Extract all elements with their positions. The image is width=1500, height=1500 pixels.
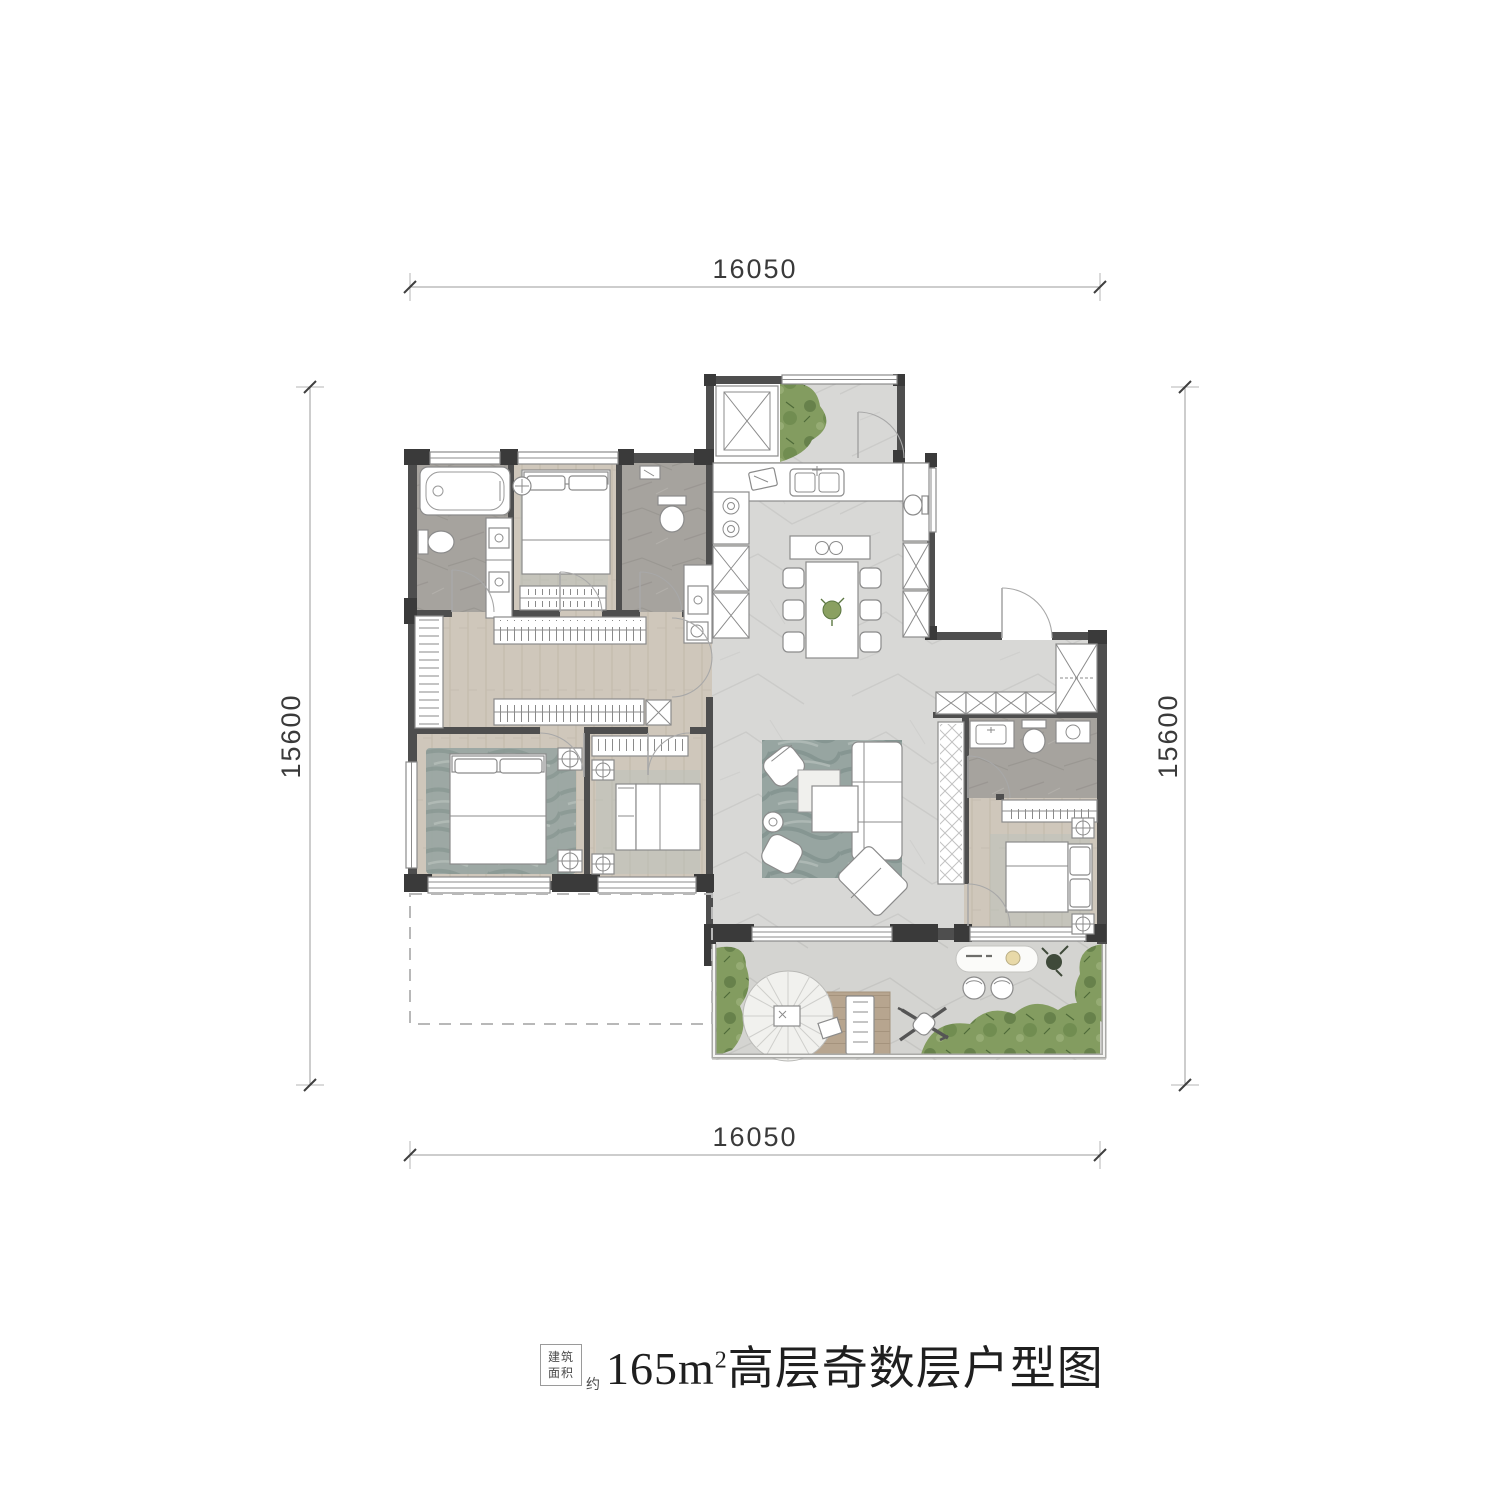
bed-4 [616, 784, 700, 850]
bedroom-3 [426, 733, 584, 874]
area-value: 165m [606, 1343, 715, 1394]
shoe-cabinets [936, 692, 1056, 714]
toilet-1 [418, 530, 454, 554]
bed-3 [450, 754, 546, 864]
bookshelf [415, 616, 443, 728]
dim-top-label: 16050 [712, 254, 797, 284]
area-label-box: 建筑 面积 [540, 1344, 582, 1386]
toilet-2 [658, 496, 686, 532]
bed-2 [522, 470, 610, 574]
dim-bottom-label: 16050 [712, 1122, 797, 1152]
master-window [970, 927, 1086, 941]
master-bed [1006, 842, 1092, 912]
living-closet-strip [938, 722, 964, 884]
floor-lamp [763, 812, 783, 832]
dim-bottom: 16050 [404, 1122, 1106, 1169]
area-label-line1: 建筑 [548, 1349, 574, 1365]
bathtub [420, 467, 510, 515]
bedroom-2 [513, 470, 610, 612]
sideboard [790, 536, 870, 559]
void-below-outline [410, 894, 712, 1024]
area-superscript: 2 [715, 1348, 728, 1374]
vanity-1 [486, 518, 512, 618]
dim-left: 15600 [276, 381, 324, 1091]
dim-right: 15600 [1153, 381, 1199, 1091]
bed4-nightstand-bottom [592, 854, 614, 874]
wardrobe-row-1 [494, 617, 646, 644]
title-block: 建筑 面积 约 165m2高层奇数层户型图 [540, 1332, 1104, 1398]
bed4-window [598, 877, 696, 893]
entry-door [1002, 588, 1052, 638]
wardrobe-row-2 [494, 699, 644, 725]
bed4-nightstand-top [592, 760, 614, 780]
bath2-fixture [640, 466, 660, 479]
hall-window-left [406, 762, 417, 868]
floor-plan-drawing: 16050 16050 15600 15600 [0, 0, 1500, 1500]
master-toilet [1022, 720, 1046, 753]
bed2-wardrobe [520, 586, 606, 610]
hall-cabinet [646, 700, 671, 725]
bed3-nightstand-top [558, 748, 582, 770]
dim-right-label: 15600 [1153, 693, 1183, 778]
plan-name: 高层奇数层户型图 [728, 1343, 1104, 1394]
approx-label: 约 [586, 1374, 600, 1398]
parasol [743, 971, 833, 1061]
bath2-vanity [684, 565, 712, 643]
elevator [716, 386, 778, 456]
master-nightstand-top [1072, 818, 1094, 838]
bedroom-4 [592, 733, 700, 874]
bed3-window [428, 877, 550, 893]
page-title: 165m2高层奇数层户型图 [606, 1332, 1104, 1398]
master-basin [1056, 721, 1090, 743]
bed3-nightstand-bottom [558, 850, 582, 872]
area-label-line2: 面积 [548, 1365, 574, 1381]
master-vanity [970, 721, 1014, 748]
master-nightstand-bottom [1072, 914, 1094, 934]
bath1-window [430, 452, 500, 464]
kitchen-wc-niche [903, 463, 929, 541]
floor-plan-page: 16050 16050 15600 15600 建筑 面积 约 165m2高层奇… [0, 0, 1500, 1500]
court-railing [782, 375, 897, 384]
living-sliding-window [752, 927, 892, 941]
bed4-wardrobe [592, 736, 688, 756]
entry-closet [1056, 644, 1097, 712]
dim-left-label: 15600 [276, 693, 306, 778]
kitchen-stove [713, 492, 749, 544]
bed2-window [518, 452, 618, 464]
dim-top: 16050 [404, 254, 1106, 301]
